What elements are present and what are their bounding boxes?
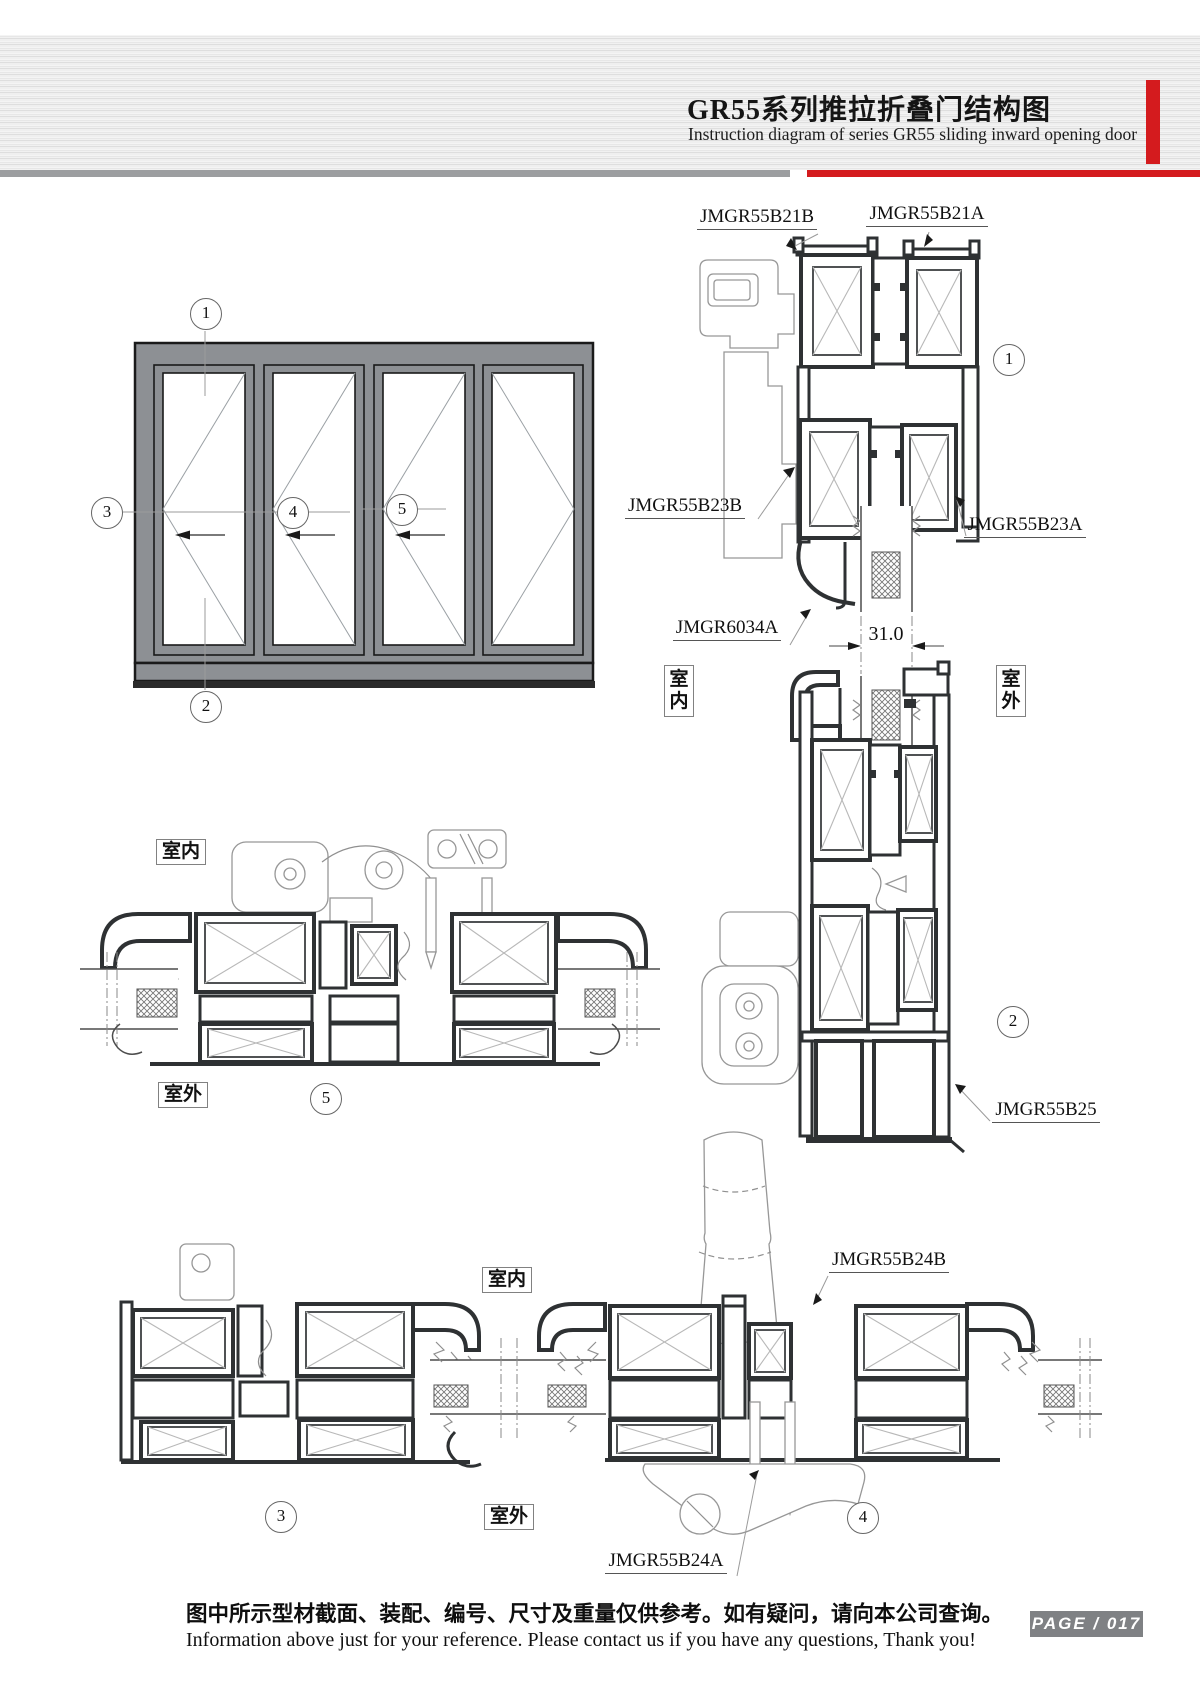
outdoor-label-bottom: 室外	[484, 1504, 534, 1530]
indoor-label-vertical: 室内	[664, 665, 694, 717]
callout-5-section: 5	[310, 1083, 342, 1115]
callout-4-elevation: 4	[277, 497, 309, 529]
label-jmgr55b21b: JMGR55B21B	[692, 206, 822, 228]
label-jmgr55b24a: JMGR55B24A	[596, 1550, 736, 1572]
page-number-badge: PAGE / 017	[1030, 1611, 1143, 1637]
horizontal-section-5	[80, 830, 660, 1064]
indoor-label-mid: 室内	[156, 839, 206, 865]
horizontal-sections-3-4	[121, 1132, 1102, 1534]
indoor-label-bottom: 室内	[482, 1267, 532, 1293]
outdoor-label-vertical: 室外	[996, 665, 1026, 717]
dimension-value: 31.0	[869, 623, 904, 645]
callout-3-elevation: 3	[91, 497, 123, 529]
callout-2-elevation: 2	[190, 691, 222, 723]
label-jmgr55b24b: JMGR55B24B	[824, 1249, 954, 1271]
callout-3-section: 3	[265, 1501, 297, 1533]
footer-note-cn: 图中所示型材截面、装配、编号、尺寸及重量仅供参考。如有疑问，请向本公司查询。	[186, 1597, 1003, 1628]
catalog-page: GR55系列推拉折叠门结构图 Instruction diagram of se…	[0, 0, 1200, 1697]
label-jmgr55b21a: JMGR55B21A	[862, 203, 992, 225]
callout-4-section: 4	[847, 1502, 879, 1534]
label-jmgr55b23b: JMGR55B23B	[620, 495, 750, 517]
vertical-section-top: 31.0	[700, 238, 979, 674]
footer-note-en: Information above just for your referenc…	[186, 1629, 976, 1652]
callout-1-section: 1	[993, 344, 1025, 376]
label-jmgr55b25: JMGR55B25	[986, 1099, 1106, 1121]
vertical-section-bottom	[702, 662, 964, 1152]
label-jmgr6034a: JMGR6034A	[662, 617, 792, 639]
outdoor-label-mid: 室外	[158, 1082, 208, 1108]
label-jmgr55b23a: JMGR55B23A	[960, 514, 1090, 536]
callout-5-elevation: 5	[386, 494, 418, 526]
callout-1-elevation: 1	[190, 298, 222, 330]
callout-2-section: 2	[997, 1006, 1029, 1038]
elevation-drawing	[123, 331, 595, 690]
